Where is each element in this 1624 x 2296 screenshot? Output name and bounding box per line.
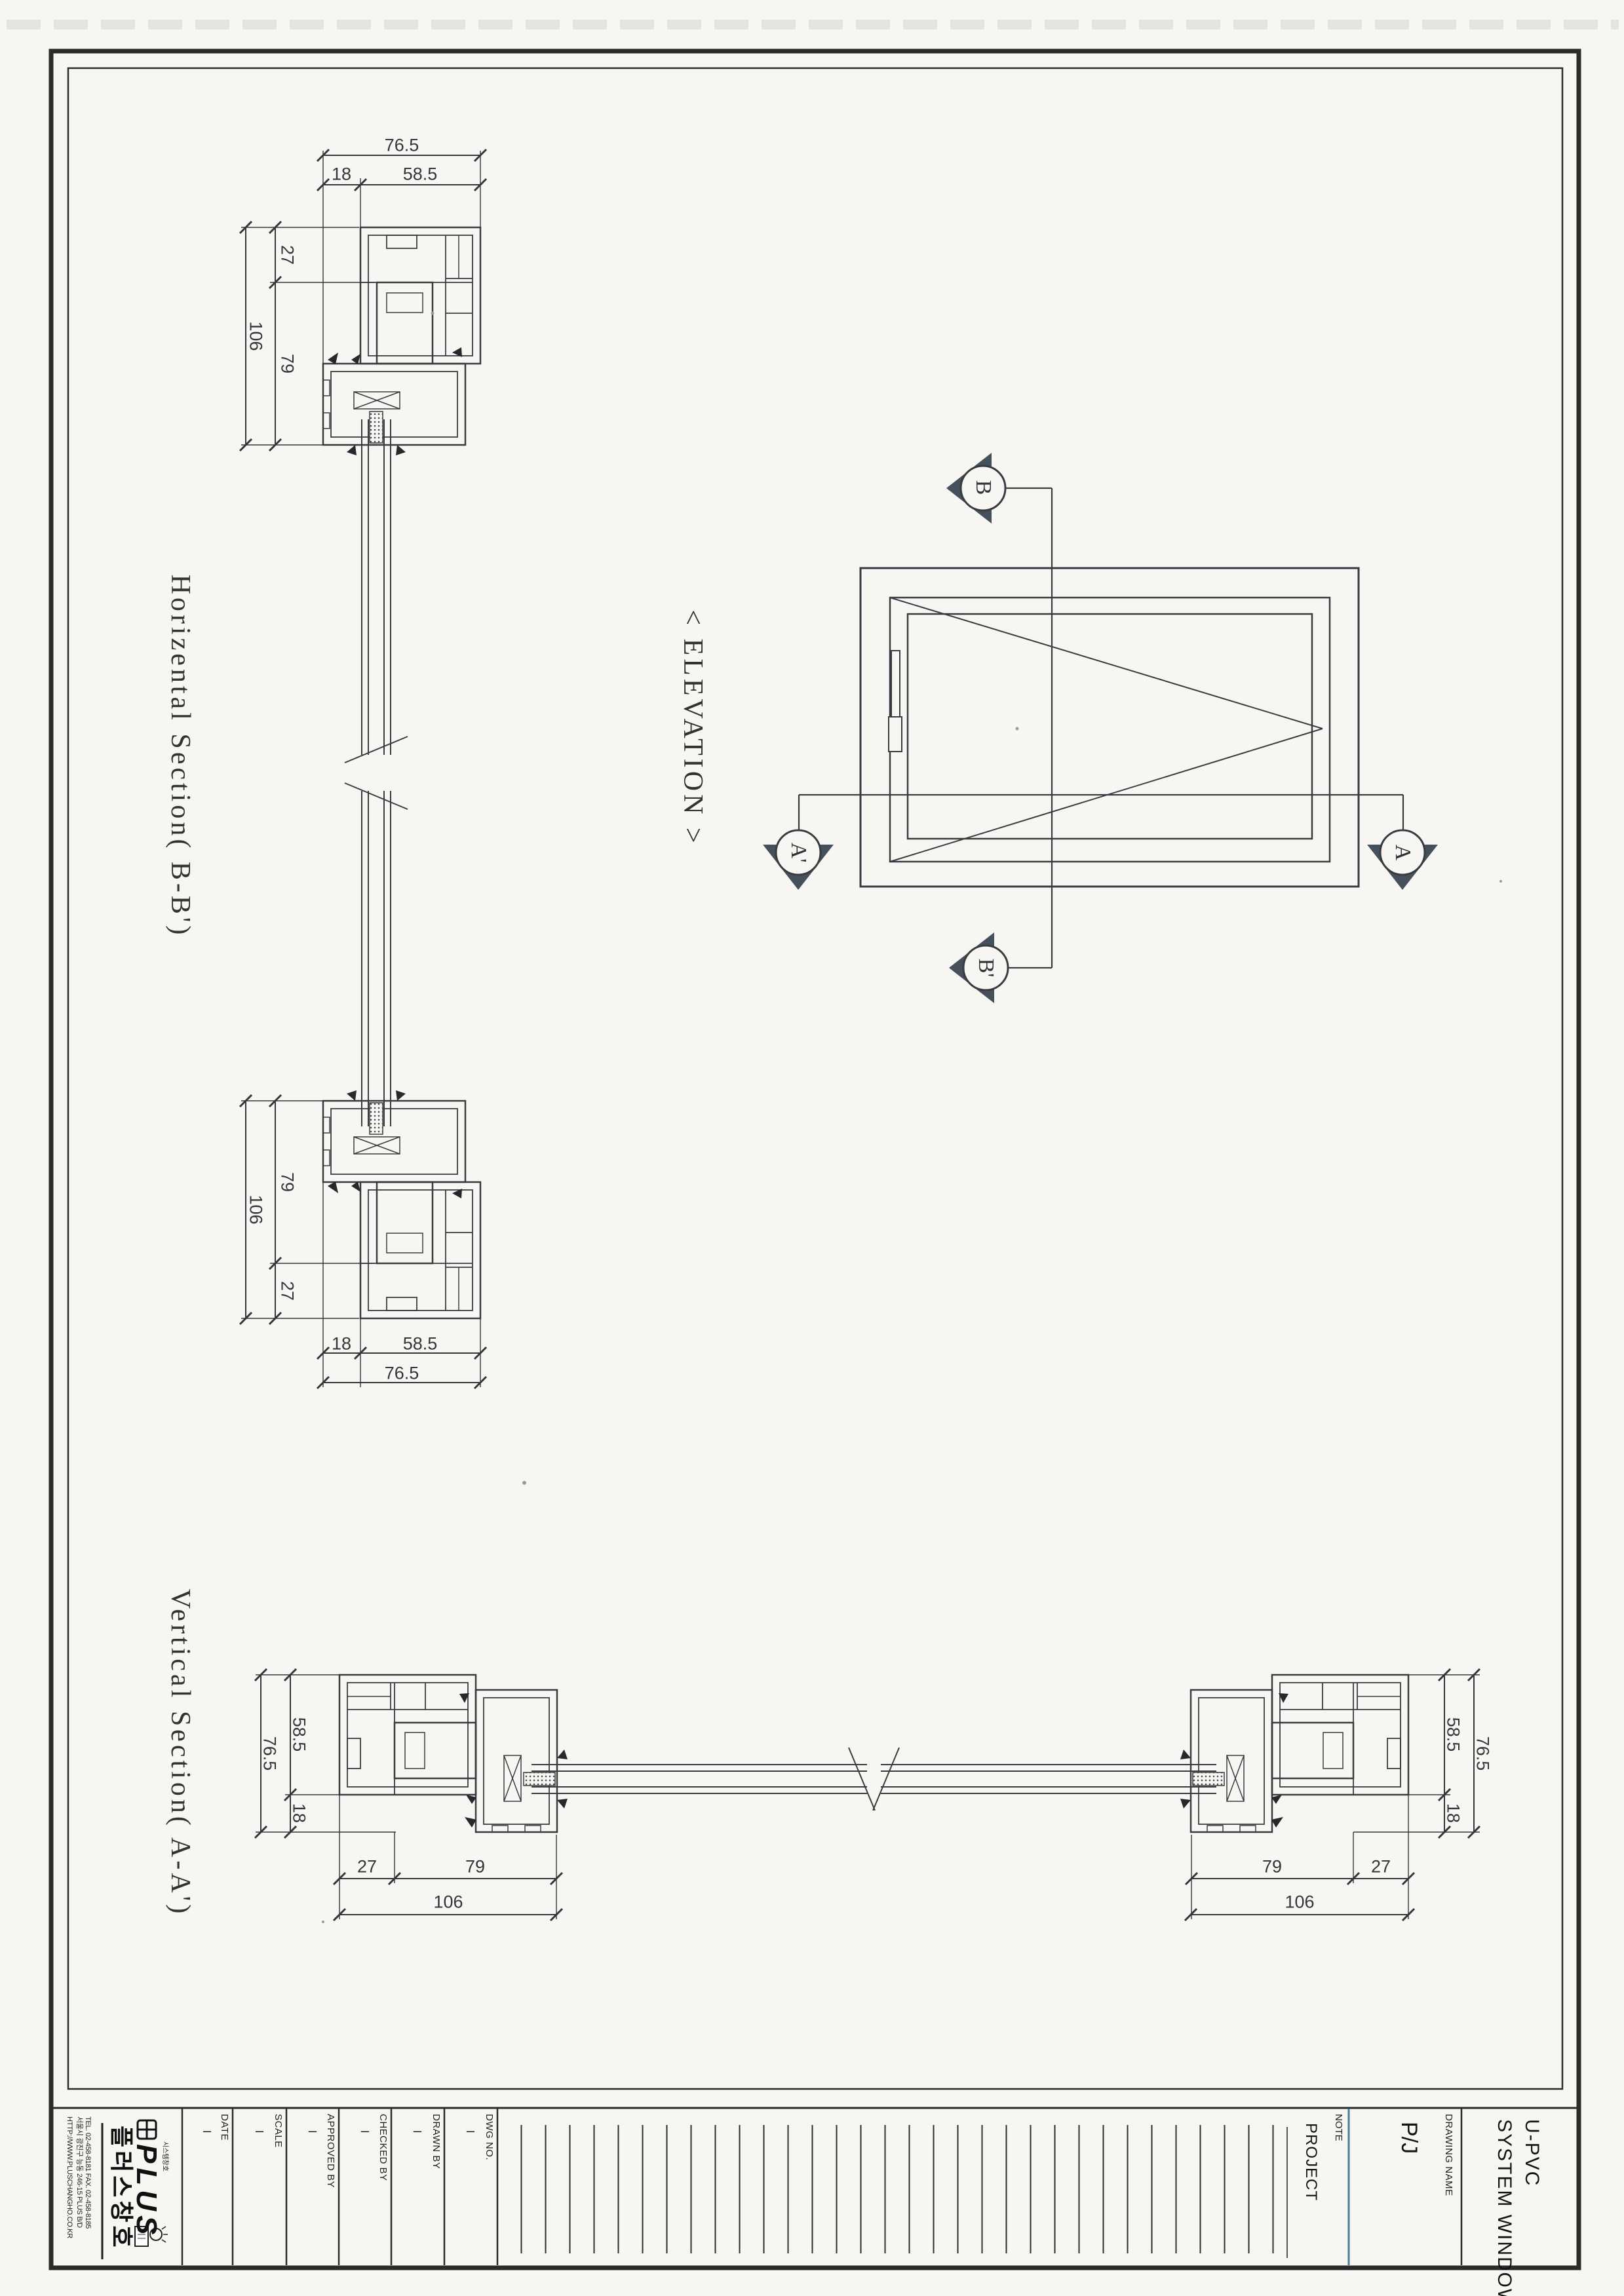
field-label-date: DATE [219, 2114, 230, 2141]
product-line1: U-PVC [1520, 2119, 1543, 2187]
hsection-dimensions [240, 149, 486, 1388]
dim-106: 106 [246, 1195, 266, 1224]
field-value-approved-by: – [309, 2122, 317, 2139]
dim-18: 18 [332, 1334, 351, 1354]
marker-a: A [1390, 845, 1415, 861]
vertical-section-title: Vertical Section( A-A') [164, 1589, 196, 1917]
field-label-checked-by: CHECKED BY [377, 2114, 389, 2181]
scanned-drawing-sheet: Horizental Section( B-B') < ELEVATION > … [0, 0, 1624, 2296]
notes-ruled-lines [505, 2125, 1281, 2253]
dim-76-5: 76.5 [260, 1736, 280, 1771]
dim-27: 27 [1371, 1857, 1391, 1877]
drawing-name-value: P/J [1396, 2122, 1421, 2154]
company-name-korean: 플러스창호 [106, 2126, 140, 2251]
field-label-drawn-by: DRAWN BY [431, 2114, 442, 2169]
dim-79: 79 [465, 1857, 485, 1877]
dim-106: 106 [433, 1892, 463, 1913]
dim-76-5: 76.5 [1473, 1736, 1493, 1771]
dim-27: 27 [277, 1281, 298, 1301]
marker-b-prime: B' [973, 959, 998, 978]
field-label-dwg-no: DWG NO. [484, 2114, 495, 2160]
drawing-canvas [0, 0, 1624, 2296]
note-label: NOTE [1333, 2114, 1344, 2141]
section-marker-icons [763, 453, 1438, 1003]
field-value-date: – [203, 2122, 211, 2139]
dim-106: 106 [246, 321, 266, 351]
marker-b: B [971, 480, 996, 495]
window-grid-icon [138, 2120, 156, 2139]
dim-27: 27 [357, 1857, 377, 1877]
dim-58-5: 58.5 [403, 164, 438, 185]
dim-79: 79 [1262, 1857, 1282, 1877]
sheet-border [51, 51, 1579, 2268]
elevation-title: < ELEVATION > [677, 609, 708, 846]
project-label: PROJECT [1302, 2123, 1320, 2201]
elevation-view [763, 453, 1438, 1003]
drawing-name-label: DRAWING NAME [1443, 2114, 1454, 2196]
dim-58-5: 58.5 [289, 1717, 309, 1752]
field-value-checked-by: – [361, 2122, 369, 2139]
field-value-scale: – [256, 2122, 263, 2139]
company-logo-subtext: 시스템창호 [161, 2141, 171, 2172]
dim-58-5: 58.5 [403, 1334, 438, 1354]
profile-sections [323, 227, 1408, 1832]
dim-18: 18 [332, 164, 351, 185]
dim-18: 18 [1443, 1803, 1463, 1823]
dim-58-5: 58.5 [1443, 1717, 1463, 1752]
product-line2: SYSTEM WINDOWS [1493, 2119, 1515, 2296]
dim-106: 106 [1285, 1892, 1314, 1913]
dim-76-5: 76.5 [385, 136, 419, 156]
dim-79: 79 [277, 354, 298, 373]
horizontal-section-title: Horizental Section( B-B') [164, 575, 196, 938]
dim-79: 79 [277, 1172, 298, 1192]
dim-18: 18 [289, 1803, 309, 1823]
dim-27: 27 [277, 245, 298, 265]
field-value-dwg-no: – [467, 2122, 474, 2139]
company-website: HTTP://WWW.PLUSCHANGHO.CO.KR [66, 2116, 73, 2238]
field-label-approved-by: APPROVED BY [325, 2114, 336, 2188]
dim-76-5: 76.5 [385, 1364, 419, 1384]
company-address: 서울시 광진구 능동 246-15 PLUS B/D [75, 2116, 85, 2228]
field-value-drawn-by: – [414, 2122, 421, 2139]
scan-specks [322, 312, 1502, 1924]
field-label-scale: SCALE [273, 2114, 284, 2148]
marker-a-prime: A' [786, 843, 811, 863]
